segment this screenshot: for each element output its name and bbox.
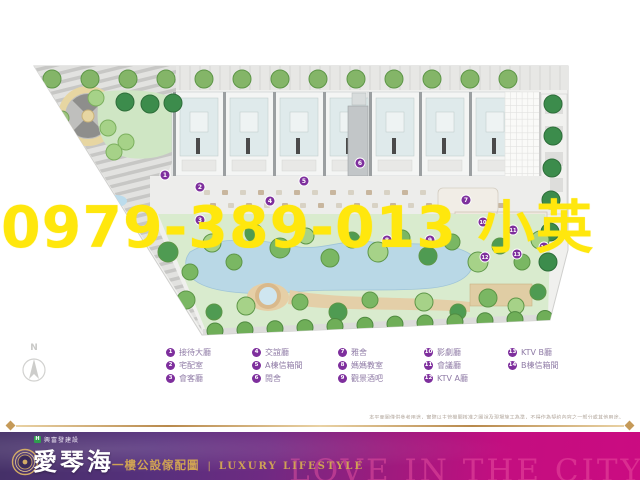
legend-item: 9觀景酒吧 [338,374,424,383]
legend-number-badge: 12 [424,374,433,383]
legend-item: 1接待大廳 [166,348,252,357]
legend-column: 7雅舍8媽媽教室9觀景酒吧 [338,348,424,387]
legend-item: 6閱舍 [252,374,338,383]
diamond-ornament-left [6,421,16,431]
legend-label: A棟信箱間 [265,362,302,370]
legend-label: KTV A廳 [437,375,468,383]
legend-label: 會客廳 [179,375,203,383]
legend-number-badge: 10 [424,348,433,357]
legend-number-badge: 6 [252,374,261,383]
compass-icon [19,353,49,385]
compass-label: N [19,343,49,353]
legend-column: 10影劇廳11會議廳12KTV A廳 [424,348,508,387]
legend-number-badge: 13 [508,348,517,357]
legend-item: 3會客廳 [166,374,252,383]
legend-label: 影劇廳 [437,349,461,357]
svg-text:5: 5 [302,178,306,185]
legend-item: 8媽媽教室 [338,361,424,370]
legend-item: 10影劇廳 [424,348,508,357]
tagline: LUXURY LIFESTYLE [219,461,364,472]
diamond-ornament-right [625,421,635,431]
facility-marker: 5 [299,176,309,186]
legend-item: 7雅舍 [338,348,424,357]
legend-number-badge: 2 [166,361,175,370]
flyer-page: 1234567891011121314 N 0979-389-013 小英 1接… [0,0,640,480]
legend-item: 11會議廳 [424,361,508,370]
svg-text:6: 6 [358,160,362,167]
legend-item: 14B棟信箱間 [508,361,602,370]
subtitle-separator: | [208,461,211,472]
facility-marker: 2 [195,182,205,192]
legend-column: 13KTV B廳14B棟信箱間 [508,348,602,387]
legend-item: 12KTV A廳 [424,374,508,383]
legend-column: 4交誼廳5A棟信箱間6閱舍 [252,348,338,387]
facility-legend: 1接待大廳2宅配室3會客廳4交誼廳5A棟信箱間6閱舍7雅舍8媽媽教室9觀景酒吧1… [166,348,602,387]
legend-label: 閱舍 [265,375,281,383]
legend-label: 雅舍 [351,349,367,357]
compass: N [19,343,49,385]
legend-label: 交誼廳 [265,349,289,357]
legend-column: 1接待大廳2宅配室3會客廳 [166,348,252,387]
legend-number-badge: 11 [424,361,433,370]
legend-number-badge: 5 [252,361,261,370]
facility-marker: 1 [160,170,170,180]
plan-title: 一樓公設傢配圖 [112,457,200,473]
legend-label: B棟信箱間 [521,362,559,370]
brand-banner: LOVE IN THE CITY H 興富發建設 愛琴海 一樓公設傢配圖 | L… [0,432,640,480]
gold-divider [0,419,640,432]
legend-item: 4交誼廳 [252,348,338,357]
banner-subtitle-row: 一樓公設傢配圖 | LUXURY LIFESTYLE [112,457,364,473]
gold-line [16,425,624,427]
legend-number-badge: 4 [252,348,261,357]
legend-number-badge: 9 [338,374,347,383]
svg-text:2: 2 [198,184,202,191]
svg-text:1: 1 [163,172,167,179]
project-name: 愛琴海 [33,442,114,477]
phone-watermark: 0979-389-013 小英 [1,200,640,257]
legend-item: 5A棟信箱間 [252,361,338,370]
facility-marker: 6 [355,158,365,168]
legend-number-badge: 7 [338,348,347,357]
legend-item: 2宅配室 [166,361,252,370]
legend-label: 宅配室 [179,362,203,370]
legend-label: 媽媽教室 [351,362,383,370]
legend-item: 13KTV B廳 [508,348,602,357]
legend-number-badge: 3 [166,374,175,383]
legend-label: 觀景酒吧 [351,375,383,383]
legend-label: KTV B廳 [521,349,552,357]
legend-label: 會議廳 [437,362,461,370]
legend-number-badge: 14 [508,361,517,370]
legend-number-badge: 8 [338,361,347,370]
legend-label: 接待大廳 [179,349,211,357]
legend-number-badge: 1 [166,348,175,357]
